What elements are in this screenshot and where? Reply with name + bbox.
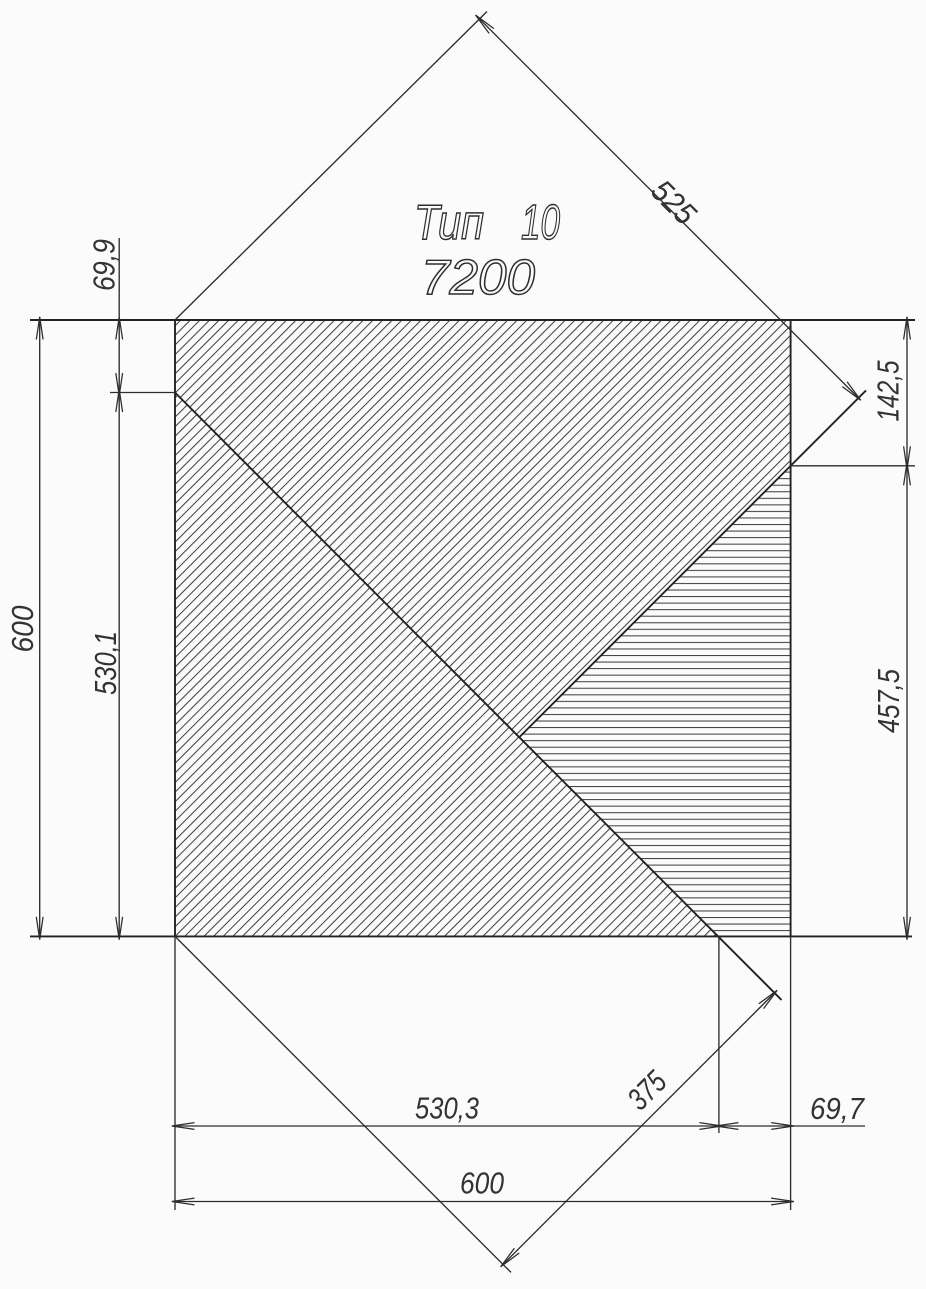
svg-text:530,1: 530,1 [88, 631, 123, 695]
svg-text:530,3: 530,3 [415, 1091, 479, 1126]
svg-text:69,7: 69,7 [810, 1091, 866, 1126]
svg-text:69,9: 69,9 [87, 239, 122, 291]
svg-text:600: 600 [5, 606, 40, 653]
svg-text:7200: 7200 [421, 251, 535, 305]
svg-text:457,5: 457,5 [871, 668, 906, 733]
svg-text:Тип: Тип [414, 196, 484, 250]
svg-text:600: 600 [460, 1166, 504, 1201]
svg-text:10: 10 [521, 196, 560, 250]
svg-text:142,5: 142,5 [871, 360, 906, 422]
